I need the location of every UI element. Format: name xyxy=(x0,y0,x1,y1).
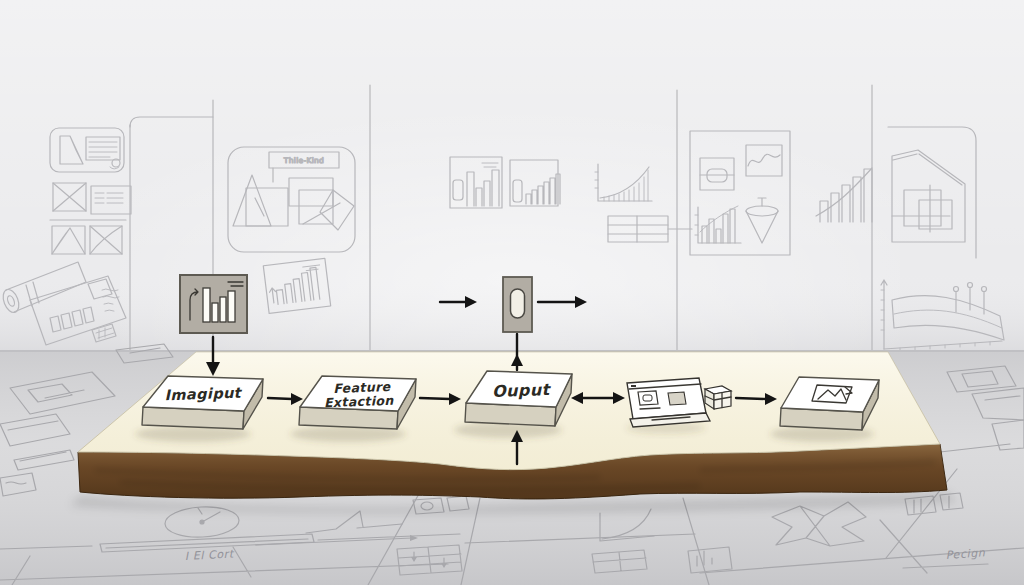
wall-panel-title: Thile-Kind xyxy=(283,156,324,165)
toggle-widget xyxy=(503,277,532,332)
browser-window-icon xyxy=(627,378,710,427)
slab-result-top xyxy=(781,377,879,412)
illustration-canvas: Thile-Kind xyxy=(0,0,1024,585)
slab-result xyxy=(780,377,879,430)
toggle-icon xyxy=(511,289,525,318)
slab-stage3: Ouput xyxy=(465,371,572,426)
slab-stage2: Feature Extaction xyxy=(299,376,416,429)
floor-note-left: I El Cort xyxy=(184,547,235,563)
input-chart-box xyxy=(180,275,247,333)
package-box-icon xyxy=(705,386,731,409)
pipeline-scene: Thile-Kind xyxy=(0,0,1024,585)
slab-stage3-label: Ouput xyxy=(492,380,552,401)
slab-stage2-label-line2: Extaction xyxy=(324,393,395,410)
